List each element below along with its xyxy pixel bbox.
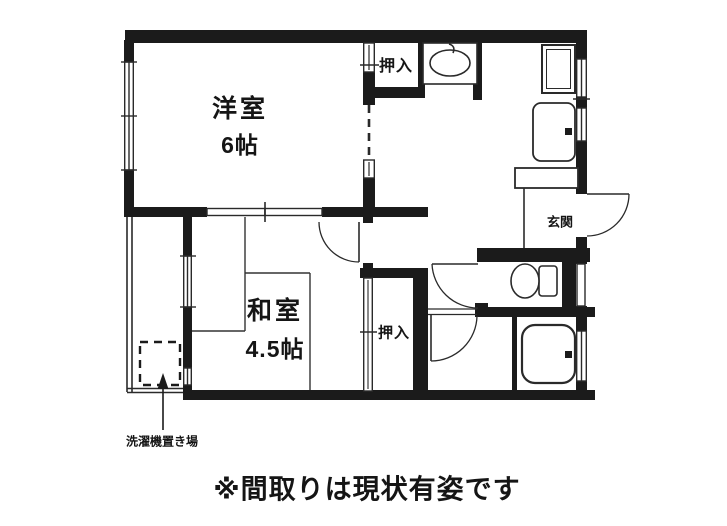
closet-sliding-doors	[360, 278, 377, 391]
toilet-door	[432, 264, 478, 308]
washing-machine-area	[140, 342, 180, 385]
window-left	[121, 62, 137, 170]
laundry-label: 洗濯機置き場	[126, 433, 198, 450]
japanese-room-label: 和室	[247, 291, 303, 327]
japanese-room-door	[319, 222, 359, 262]
washroom-door	[428, 309, 477, 361]
entrance-door	[587, 194, 629, 236]
entrance-label: 玄関	[547, 212, 573, 231]
floor-plan: 洋室 6帖 和室 4.5帖 押入 押入 玄関 洗濯機置き場 ※間取りは現状有姿で…	[0, 0, 727, 526]
water-heater-unit	[533, 103, 575, 161]
floor-plan-drawing	[0, 0, 727, 526]
japanese-room-size: 4.5帖	[246, 330, 305, 364]
closet-top-label: 押入	[379, 52, 413, 76]
sliding-doors-partition	[207, 202, 322, 222]
pipe-space-right	[577, 264, 585, 306]
western-room-size: 6帖	[221, 126, 259, 160]
closet-bottom-label: 押入	[378, 322, 410, 343]
laundry-arrow	[158, 373, 169, 430]
west-room-kitchen-boundary	[360, 43, 379, 178]
entrance-step	[515, 168, 578, 248]
window-bathroom	[577, 331, 587, 381]
footnote: ※間取りは現状有姿です	[213, 468, 520, 507]
bathtub	[522, 325, 575, 383]
kitchen-sink	[423, 43, 477, 84]
toilet	[511, 264, 557, 298]
refrigerator-space	[542, 45, 575, 93]
western-room-label: 洋室	[212, 89, 268, 125]
